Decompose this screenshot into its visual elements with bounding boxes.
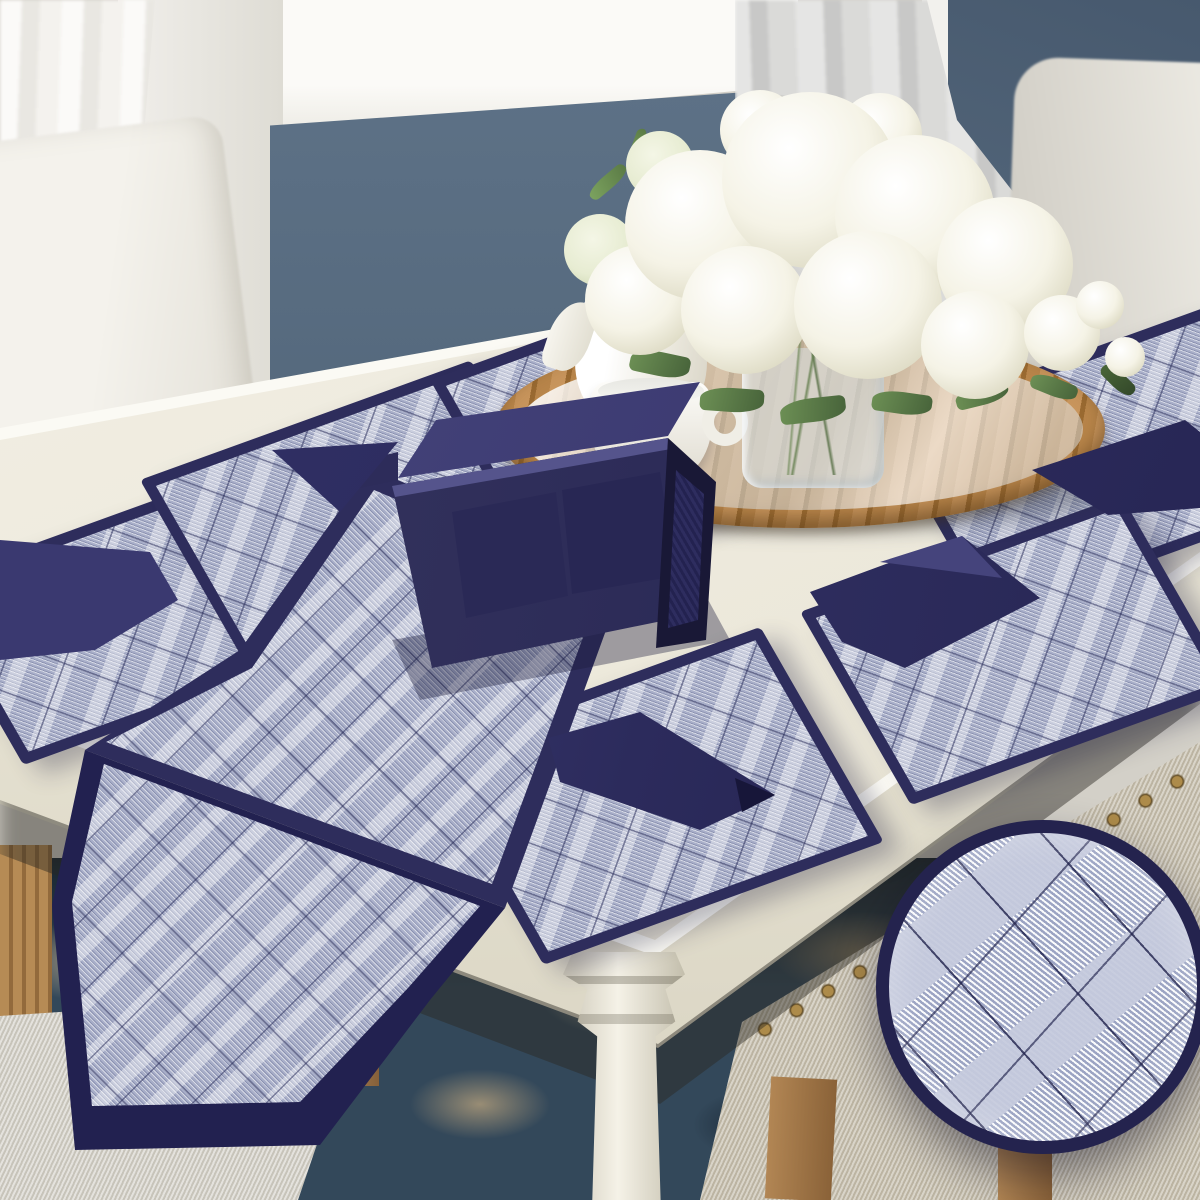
wood-slats (0, 845, 52, 1023)
leaf (586, 162, 630, 202)
flower-puff (921, 291, 1029, 399)
flower-puff (681, 246, 809, 374)
bench-leg-front (765, 1076, 837, 1200)
flower-puff (1105, 337, 1145, 377)
leaf (871, 388, 933, 418)
leaf (1028, 370, 1079, 405)
photo-canvas (0, 0, 1200, 1200)
hydrangea-bouquet (540, 80, 1160, 420)
flower-puff (1076, 281, 1124, 329)
flower-puff (794, 231, 942, 379)
leaf (699, 386, 765, 414)
bench-leg-right (998, 1148, 1052, 1200)
fabric-magnifier (876, 820, 1200, 1154)
